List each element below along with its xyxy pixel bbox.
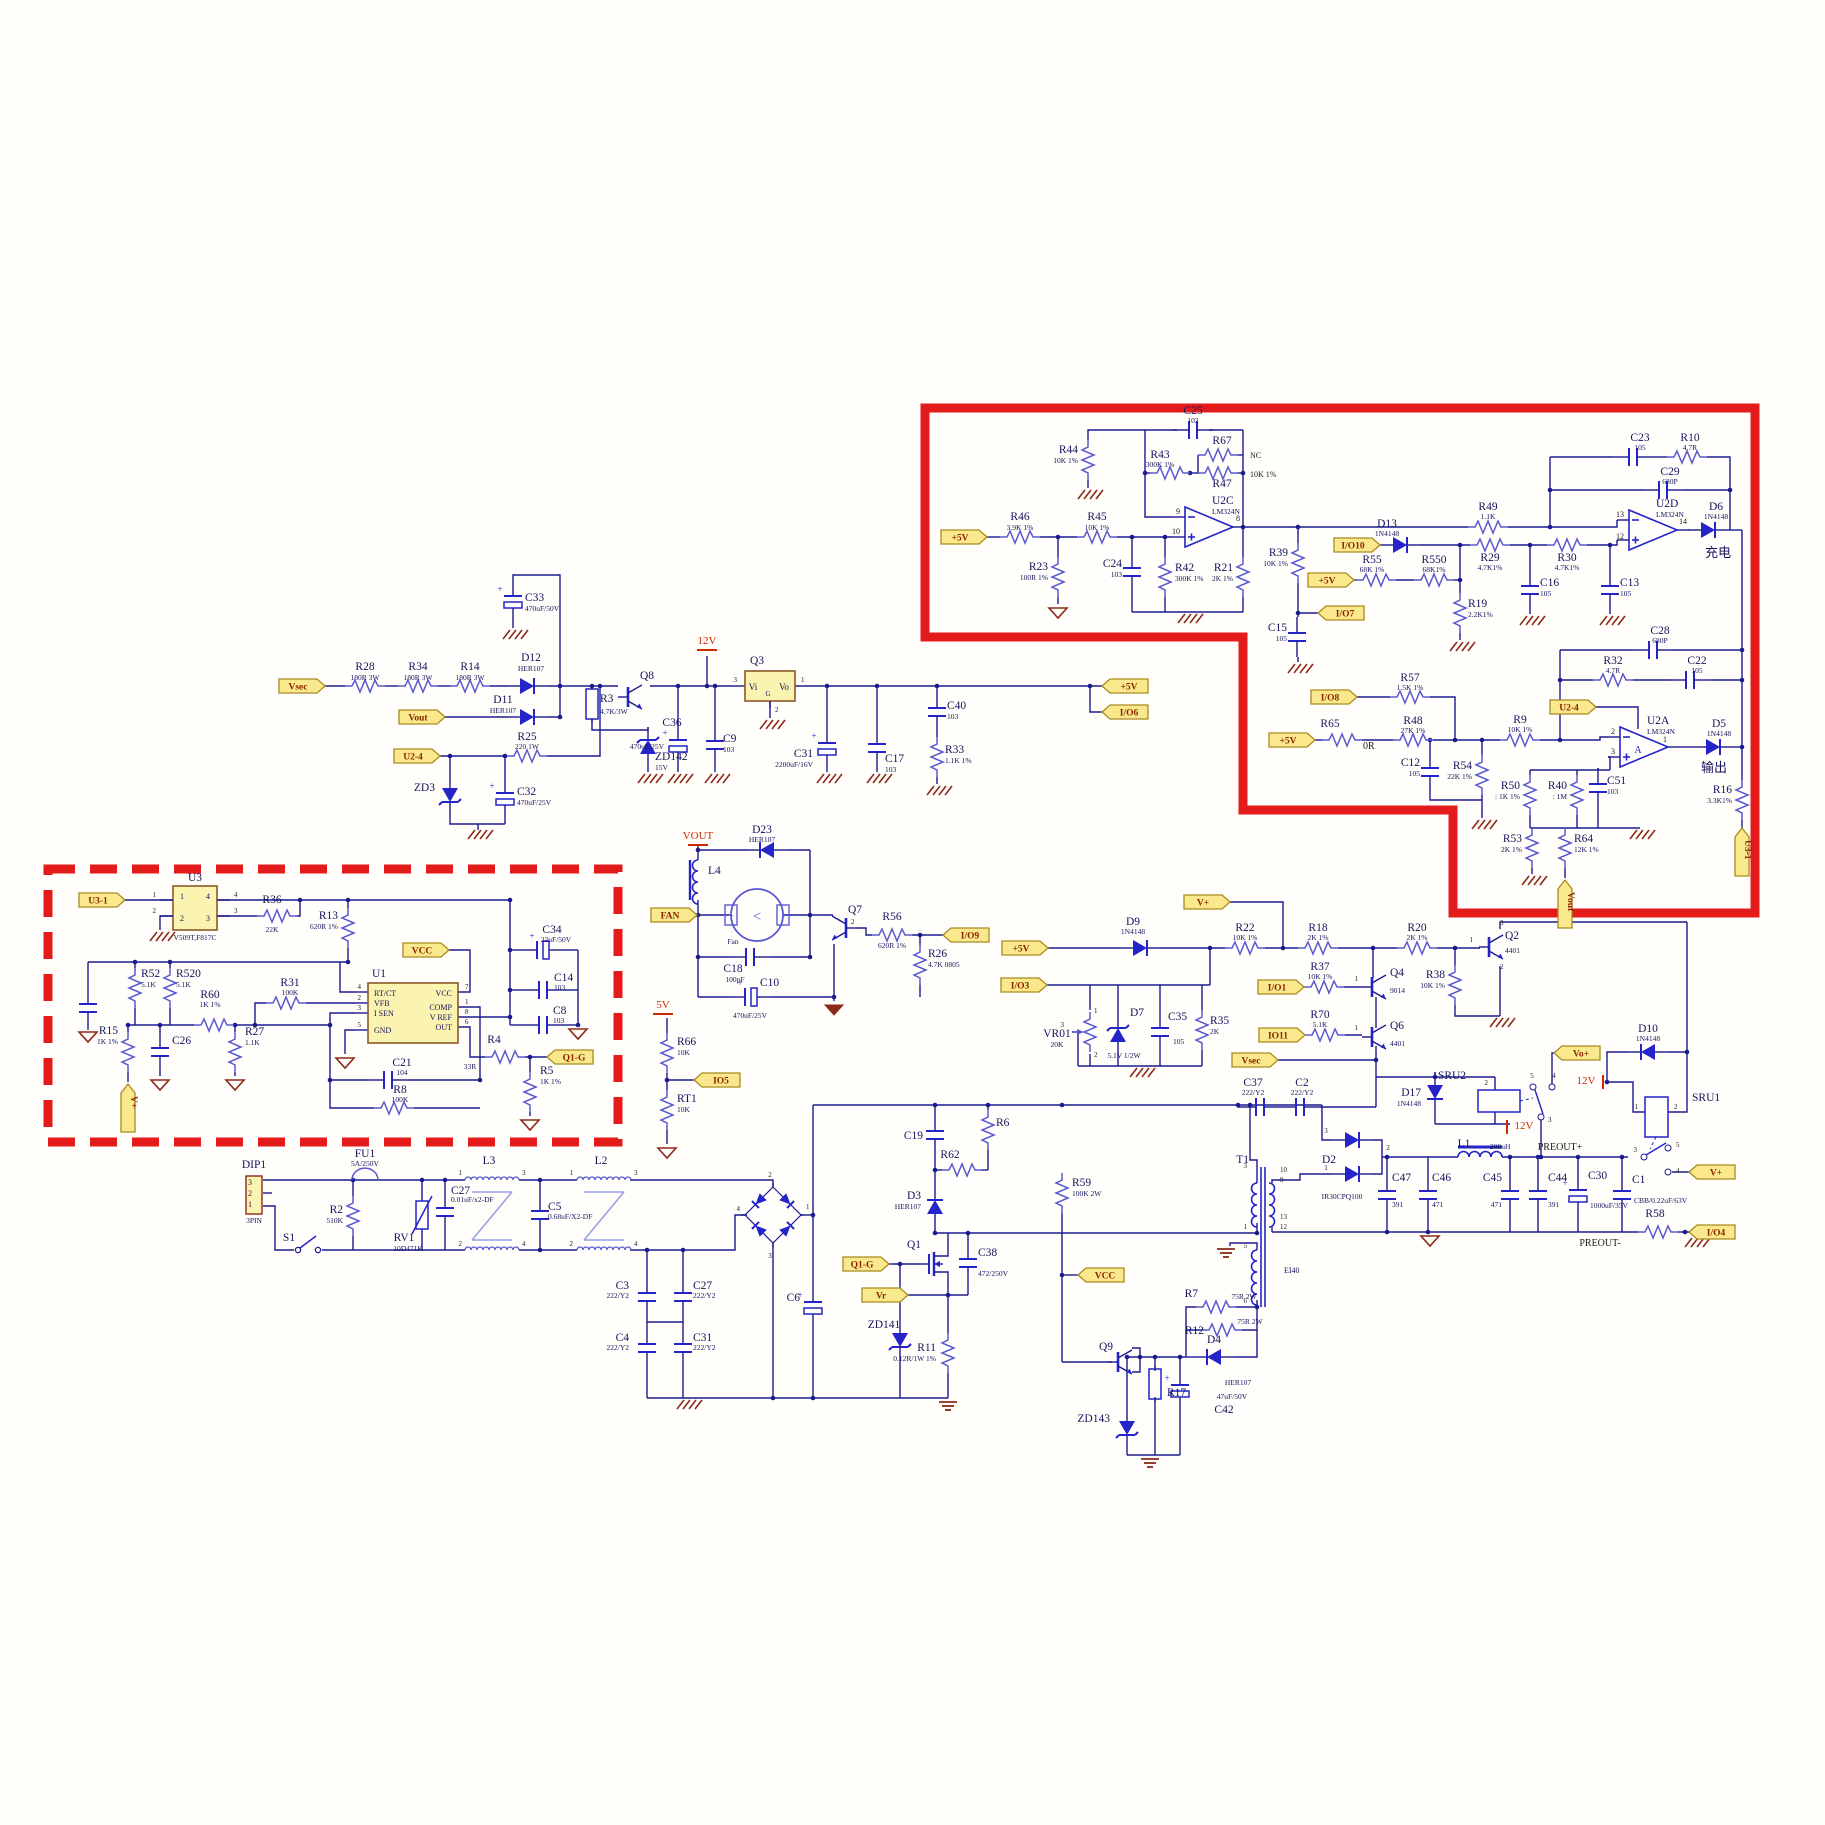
schematic-text: 1	[806, 1203, 810, 1211]
schematic-text: 6	[1244, 1297, 1248, 1305]
schematic-text: C16	[1540, 577, 1559, 589]
junction-dot	[158, 1023, 163, 1028]
junction-dot	[1255, 1231, 1260, 1236]
schematic-text: A	[1634, 745, 1642, 756]
net-flag-IO10: I/O10	[1334, 538, 1380, 552]
schematic-text: VR01	[1043, 1028, 1071, 1040]
junction-dot	[681, 1248, 686, 1253]
schematic-text: : 1M	[1553, 792, 1568, 801]
schematic-text: 470uF/25V	[733, 1011, 768, 1020]
net-flag-+5V: +5V	[1269, 733, 1315, 747]
net-flag-Vsec: Vsec	[1232, 1053, 1278, 1067]
schematic-text: PREOUT+	[1538, 1142, 1583, 1153]
schematic-text: V509T,F817C	[174, 933, 217, 942]
schematic-text: RV1	[394, 1232, 415, 1244]
schematic-text: R56	[882, 911, 901, 923]
schematic-text: 300K 1%	[1175, 574, 1204, 583]
schematic-text: Q2	[1505, 930, 1519, 942]
schematic-text: C44	[1548, 1172, 1567, 1184]
schematic-text: L2	[595, 1155, 608, 1167]
schematic-text: 222/Y2	[607, 1343, 630, 1352]
schematic-text: I/O7	[1336, 610, 1355, 620]
schematic-text: 103	[554, 983, 566, 992]
schematic-text: R28	[355, 661, 374, 673]
junction-dot	[1548, 488, 1553, 493]
schematic-text: 2	[180, 914, 184, 923]
schematic-text: VCC	[436, 989, 452, 998]
schematic-text: 3	[1500, 919, 1504, 927]
junction-dot	[771, 1396, 776, 1401]
junction-dot	[898, 1262, 903, 1267]
schematic-text: D12	[521, 652, 541, 664]
schematic-text: R36	[262, 894, 281, 906]
schematic-text: 222/Y2	[607, 1291, 630, 1300]
schematic-text: 4.7K/3W	[600, 707, 629, 716]
junction-dot	[1558, 678, 1563, 683]
junction-dot	[1426, 1230, 1431, 1235]
junction-dot	[1740, 678, 1745, 683]
net-flag-IO5: IO5	[694, 1073, 740, 1087]
junction-dot	[598, 684, 603, 689]
schematic-text: R12	[1185, 1325, 1204, 1337]
schematic-text: 2	[358, 994, 362, 1002]
schematic-text: 0R	[1363, 741, 1375, 752]
svg-text:+: +	[497, 584, 502, 594]
schematic-text: 680P	[1652, 636, 1667, 645]
junction-dot	[478, 1078, 483, 1083]
schematic-text: 5	[1676, 1141, 1680, 1149]
schematic-text: 22K 1%	[1447, 772, 1472, 781]
net-flag-IO3: I/O3	[1001, 978, 1047, 992]
schematic-text: VCC	[412, 947, 433, 957]
schematic-text: 10K	[677, 1048, 691, 1057]
net-flag-Vout: Vout	[399, 710, 445, 724]
junction-dot	[918, 933, 923, 938]
schematic-text: C18	[723, 963, 742, 975]
junction-dot	[558, 684, 563, 689]
schematic-text: G	[765, 690, 770, 698]
schematic-text: L4	[708, 865, 721, 877]
schematic-text: 12V	[1515, 1120, 1534, 1132]
junction-dot	[1453, 738, 1458, 743]
schematic-text: 3	[248, 1178, 252, 1187]
schematic-text: R65	[1320, 718, 1339, 730]
junction-dot	[1480, 738, 1485, 743]
schematic-text: C13	[1620, 577, 1639, 589]
net-flag-V+: V+	[1184, 895, 1230, 909]
schematic-text: 105	[1276, 634, 1288, 643]
schematic-text: 47uF/50V	[1217, 1392, 1248, 1401]
schematic-text: D17	[1401, 1087, 1421, 1099]
schematic-text: COMP	[429, 1003, 452, 1012]
schematic-text: 12V	[698, 635, 717, 647]
schematic-text: R53	[1503, 833, 1522, 845]
junction-dot	[1608, 543, 1613, 548]
schematic-text: 1	[1244, 1223, 1248, 1231]
schematic-text: 222/Y2	[1242, 1088, 1265, 1097]
schematic-text: 1	[1355, 975, 1359, 983]
schematic-text: 3	[1324, 1127, 1328, 1135]
junction-dot	[713, 684, 718, 689]
junction-dot	[645, 1248, 650, 1253]
net-flag-IO1: I/O1	[1258, 980, 1304, 994]
schematic-text: FAN	[661, 912, 680, 922]
schematic-text: 1.1K	[245, 1038, 260, 1047]
junction-dot	[811, 1213, 816, 1218]
schematic-text: 180R 3W	[456, 673, 486, 682]
junction-dot	[1683, 1230, 1688, 1235]
schematic-text: NC	[1250, 451, 1261, 460]
schematic-text: 1.1K	[1481, 512, 1496, 521]
net-flag-Vo+: Vo+	[1554, 1046, 1600, 1060]
schematic-text: 12	[1280, 1223, 1288, 1231]
junction-dot	[1374, 1058, 1379, 1063]
svg-text:+: +	[811, 731, 816, 741]
schematic-text: 10K 1%	[1053, 456, 1078, 465]
schematic-text: 4	[358, 983, 362, 991]
net-flag-U31: U3-1	[79, 893, 125, 907]
schematic-text: 105	[1620, 589, 1632, 598]
schematic-text: C51	[1607, 775, 1626, 787]
schematic-text: 620R 1%	[878, 941, 906, 950]
schematic-text: C36	[662, 717, 681, 729]
schematic-text: C47	[1392, 1172, 1411, 1184]
schematic-text: 9	[1176, 507, 1180, 516]
schematic-text: 105	[1691, 666, 1703, 675]
schematic-text: I SEN	[374, 1009, 394, 1018]
schematic-text: I/O9	[961, 932, 980, 942]
junction-dot	[298, 898, 303, 903]
schematic-text: RT/CT	[374, 989, 396, 998]
schematic-text: 1	[180, 892, 184, 901]
schematic-text: S1	[283, 1232, 295, 1244]
junction-dot	[966, 1231, 971, 1236]
schematic-text: 2K 1%	[1501, 845, 1522, 854]
junction-dot	[1241, 471, 1246, 476]
schematic-text: VFB	[374, 999, 390, 1008]
schematic-text: R19	[1468, 598, 1487, 610]
schematic-text: I/O4	[1707, 1229, 1726, 1239]
junction-dot	[676, 684, 681, 689]
junction-dot	[1208, 946, 1213, 951]
schematic-text: 12	[1616, 532, 1624, 541]
schematic-text: C9	[723, 733, 737, 745]
schematic-text: R34	[408, 661, 427, 673]
schematic-text: 5	[1244, 1242, 1248, 1250]
schematic-text: 2	[1611, 727, 1615, 736]
schematic-text: C32	[517, 786, 536, 798]
schematic-text: 4401	[1505, 946, 1520, 955]
junction-dot	[1281, 946, 1286, 951]
schematic-text: SRU2	[1438, 1070, 1466, 1082]
schematic-text: U1	[372, 968, 386, 980]
junction-dot	[420, 1178, 425, 1183]
schematic-text: 10	[1280, 1166, 1288, 1174]
schematic-text: R45	[1087, 511, 1106, 523]
schematic-text: 472/250V	[978, 1269, 1009, 1278]
schematic-text: 4	[234, 891, 238, 899]
schematic-text: ZD3	[414, 782, 435, 794]
junction-dot	[508, 1015, 513, 1020]
schematic-text: U2-4	[403, 753, 423, 763]
schematic-text: SRU1	[1692, 1092, 1720, 1104]
schematic-text: 222/Y2	[693, 1291, 716, 1300]
schematic-text: Fan	[727, 937, 739, 946]
junction-dot	[1458, 543, 1463, 548]
schematic-text: 1N4148	[1397, 1099, 1421, 1108]
junction-dot	[328, 1023, 333, 1028]
junction-dot	[1508, 1155, 1513, 1160]
schematic-text: EI40	[1284, 1266, 1300, 1275]
schematic-text: ZD141	[868, 1319, 901, 1331]
schematic-text: 222/Y2	[693, 1343, 716, 1352]
schematic-text: 10D471K	[393, 1244, 423, 1253]
schematic-text: 9	[1280, 1176, 1284, 1184]
junction-dot	[1153, 1355, 1158, 1360]
schematic-text: 1	[1355, 1024, 1359, 1032]
schematic-text: 3	[734, 676, 738, 684]
junction-dot	[346, 898, 351, 903]
schematic-text: Q3	[750, 655, 764, 667]
schematic-text: 10K 1%	[1250, 470, 1277, 479]
schematic-text: 2200uF/16V	[775, 760, 814, 769]
schematic-text: C26	[172, 1035, 191, 1047]
junction-dot	[1728, 488, 1733, 493]
schematic-text: R35	[1210, 1015, 1229, 1027]
schematic-text: R64	[1574, 833, 1593, 845]
schematic-text: +5V	[1318, 577, 1335, 587]
schematic-text: 3	[1634, 1146, 1638, 1154]
schematic-text: I/O8	[1321, 694, 1340, 704]
schematic-text: Vo+	[1573, 1050, 1589, 1060]
schematic-text: R42	[1175, 562, 1194, 574]
junction-dot	[946, 1293, 951, 1298]
junction-dot	[1060, 1103, 1065, 1108]
net-flag-+5V: +5V	[1308, 573, 1354, 587]
schematic-text: 1K 1%	[199, 1000, 220, 1009]
schematic-text: 105	[1173, 1037, 1185, 1046]
schematic-text: 620R 1%	[310, 922, 338, 931]
junction-dot	[935, 684, 940, 689]
schematic-text: R52	[141, 968, 160, 980]
schematic-text: 9014	[1390, 986, 1405, 995]
schematic-text: 5.1K	[1313, 1020, 1328, 1029]
schematic-text: 3	[522, 1169, 526, 1177]
schematic-text: 0.12R/1W 1%	[893, 1354, 936, 1363]
schematic-text: 3	[206, 914, 210, 923]
schematic-text: U3	[188, 872, 202, 884]
schematic-text: Q7	[848, 904, 862, 916]
schematic-text: 2K 1%	[1212, 574, 1233, 583]
schematic-text: 33R	[464, 1062, 477, 1071]
schematic-text: C24	[1103, 558, 1122, 570]
junction-dot	[576, 1023, 581, 1028]
schematic-text: 3.3K1%	[1707, 796, 1732, 805]
schematic-text: 4.7K 0805	[928, 960, 960, 969]
schematic-text: 105	[1634, 443, 1646, 452]
schematic-text: +5V	[1279, 737, 1296, 747]
schematic-text: C1	[1632, 1174, 1646, 1186]
schematic-text: +5V	[951, 534, 968, 544]
schematic-text: Q1	[907, 1239, 921, 1251]
schematic-text: 2	[1500, 963, 1504, 971]
schematic-text: 470uF/50V	[525, 604, 560, 613]
junction-dot	[1453, 946, 1458, 951]
schematic-text: ZD143	[1077, 1413, 1110, 1425]
schematic-text: 103	[723, 745, 735, 754]
junction-dot	[808, 913, 813, 918]
schematic-text: 200uH	[1490, 1142, 1511, 1151]
junction-dot	[1685, 1050, 1690, 1055]
schematic-text: 4.7R	[1606, 666, 1620, 675]
svg-text:+: +	[489, 781, 494, 791]
schematic-text: Q9	[1099, 1341, 1113, 1353]
schematic-text: 4	[206, 892, 210, 901]
net-flag-VCC: VCC	[403, 943, 449, 957]
schematic-text: 470uF/25V	[630, 742, 665, 751]
schematic-text: 470uF/25V	[517, 798, 552, 807]
schematic-text: 10K 1%	[1308, 972, 1333, 981]
schematic-text: 103	[947, 712, 959, 721]
schematic-text: 222/Y2	[1291, 1088, 1314, 1097]
schematic-text: 12K 1%	[1574, 845, 1599, 854]
junction-dot	[1088, 684, 1093, 689]
schematic-text: 1	[1324, 1164, 1328, 1172]
junction-dot	[1138, 1355, 1143, 1360]
net-flag-+5V: +5V	[1002, 941, 1048, 955]
schematic-text: 103	[885, 765, 897, 774]
schematic-text: D11	[493, 694, 513, 706]
net-flag-Q1G: Q1-G	[547, 1050, 593, 1064]
schematic-text: 3	[768, 1252, 772, 1260]
schematic-text: Vi	[749, 682, 758, 692]
schematic-text: 3	[234, 907, 238, 915]
schematic-text: +5V	[1120, 683, 1137, 693]
junction-dot	[705, 684, 710, 689]
junction-dot	[986, 1103, 991, 1108]
schematic-text: Vsec	[289, 683, 308, 693]
schematic-text: Vsec	[1242, 1057, 1261, 1067]
junction-dot	[808, 955, 813, 960]
schematic-text: 102	[1187, 416, 1199, 425]
schematic-text: R6	[996, 1117, 1010, 1129]
schematic-text: U2C	[1212, 495, 1234, 507]
schematic-text: 10K 1%	[1233, 933, 1258, 942]
schematic-text: 0.68uF/X2-DF	[548, 1212, 592, 1221]
net-flag-Vr: Vr	[862, 1288, 908, 1302]
schematic-text: 2	[570, 1240, 574, 1248]
schematic-text: 5.1V 1/2W	[1107, 1051, 1141, 1060]
schematic-text: 2	[775, 706, 779, 714]
schematic-text: 2	[248, 1189, 252, 1198]
net-flag-U24: U2-4	[394, 749, 440, 763]
schematic-text: C30	[1588, 1170, 1607, 1182]
svg-text:<: <	[753, 909, 761, 925]
schematic-text: 27K 1%	[1401, 726, 1426, 735]
schematic-text: C17	[885, 753, 904, 765]
schematic-text: 391	[1548, 1200, 1560, 1209]
schematic-text: 4	[1676, 1167, 1680, 1175]
schematic-text: 5	[1530, 1072, 1534, 1080]
net-flag-IO7: I/O7	[1318, 606, 1364, 620]
schematic-text: R16	[1713, 784, 1732, 796]
schematic-text: 220 1W	[515, 742, 540, 751]
junction-dot	[448, 754, 453, 759]
schematic-text: 13	[1280, 1213, 1288, 1221]
schematic-text: R15	[99, 1025, 118, 1037]
schematic-text: 10K 1%	[1263, 559, 1288, 568]
schematic-text: 4401	[1390, 1039, 1405, 1048]
net-flag-U24: U2-4	[1550, 700, 1596, 714]
schematic-text: V+	[1710, 1169, 1722, 1179]
schematic-text: 15V	[655, 763, 669, 772]
schematic-text: V REF	[430, 1013, 453, 1022]
schematic-text: 2	[1094, 1051, 1098, 1059]
schematic-text: U3-1	[1742, 840, 1752, 860]
schematic-text: : 1K 1%	[1495, 792, 1520, 801]
schematic-text: 20K	[1051, 1040, 1065, 1049]
schematic-text: R27	[245, 1026, 264, 1038]
schematic-text: 100R 1%	[1020, 573, 1048, 582]
schematic-text: 1	[459, 1169, 463, 1177]
net-flag-+5V: +5V	[941, 530, 987, 544]
schematic-text: 22uF/50V	[541, 935, 572, 944]
junction-dot	[346, 960, 351, 965]
junction-dot	[696, 848, 701, 853]
schematic-text: R54	[1453, 760, 1472, 772]
junction-dot	[933, 1168, 938, 1173]
schematic-text: 1	[153, 891, 157, 899]
schematic-text: R46	[1010, 511, 1029, 523]
schematic-text: R520	[176, 968, 201, 980]
schematic-text: 100K 2W	[1072, 1189, 1102, 1198]
schematic-text: DIP1	[242, 1159, 267, 1171]
junction-dot	[1539, 1155, 1544, 1160]
schematic-text: HER107	[490, 706, 517, 715]
junction-dot	[1130, 535, 1135, 540]
schematic-text: 391	[1392, 1200, 1404, 1209]
schematic-text: C40	[947, 700, 966, 712]
schematic-text: 3	[1611, 747, 1615, 756]
schematic-text: R67	[1212, 435, 1231, 447]
junction-dot	[508, 898, 513, 903]
junction-dot	[875, 684, 880, 689]
schematic-text: 471	[1432, 1200, 1444, 1209]
net-flag-IO11: IO11	[1259, 1028, 1305, 1042]
schematic-text: 4.7K1%	[1555, 563, 1580, 572]
net-flag-IO4: I/O4	[1689, 1225, 1735, 1239]
schematic-text: LM324N	[1647, 727, 1676, 736]
schematic-text: 4	[737, 1205, 741, 1213]
schematic-text: 2.2K1%	[1468, 610, 1493, 619]
schematic-text: R66	[677, 1036, 696, 1048]
schematic-text: 2	[851, 918, 855, 926]
svg-text:-: -	[781, 911, 784, 922]
schematic-text: R39	[1269, 547, 1288, 559]
schematic-text: R47	[1212, 478, 1231, 490]
schematic-text: 10K 1%	[1420, 981, 1445, 990]
schematic-text: VCC	[1095, 1272, 1116, 1282]
schematic-text: C46	[1432, 1172, 1451, 1184]
schematic-text: R13	[319, 910, 338, 922]
schematic-text: C33	[525, 592, 544, 604]
schematic-text: 103	[553, 1016, 565, 1025]
net-flag-IO8: I/O8	[1311, 690, 1357, 704]
schematic-text: R5	[540, 1065, 554, 1077]
schematic-text: 75R 2W	[1237, 1317, 1263, 1326]
junction-dot	[538, 1178, 543, 1183]
schematic-text: 68K 1%	[1360, 565, 1385, 574]
